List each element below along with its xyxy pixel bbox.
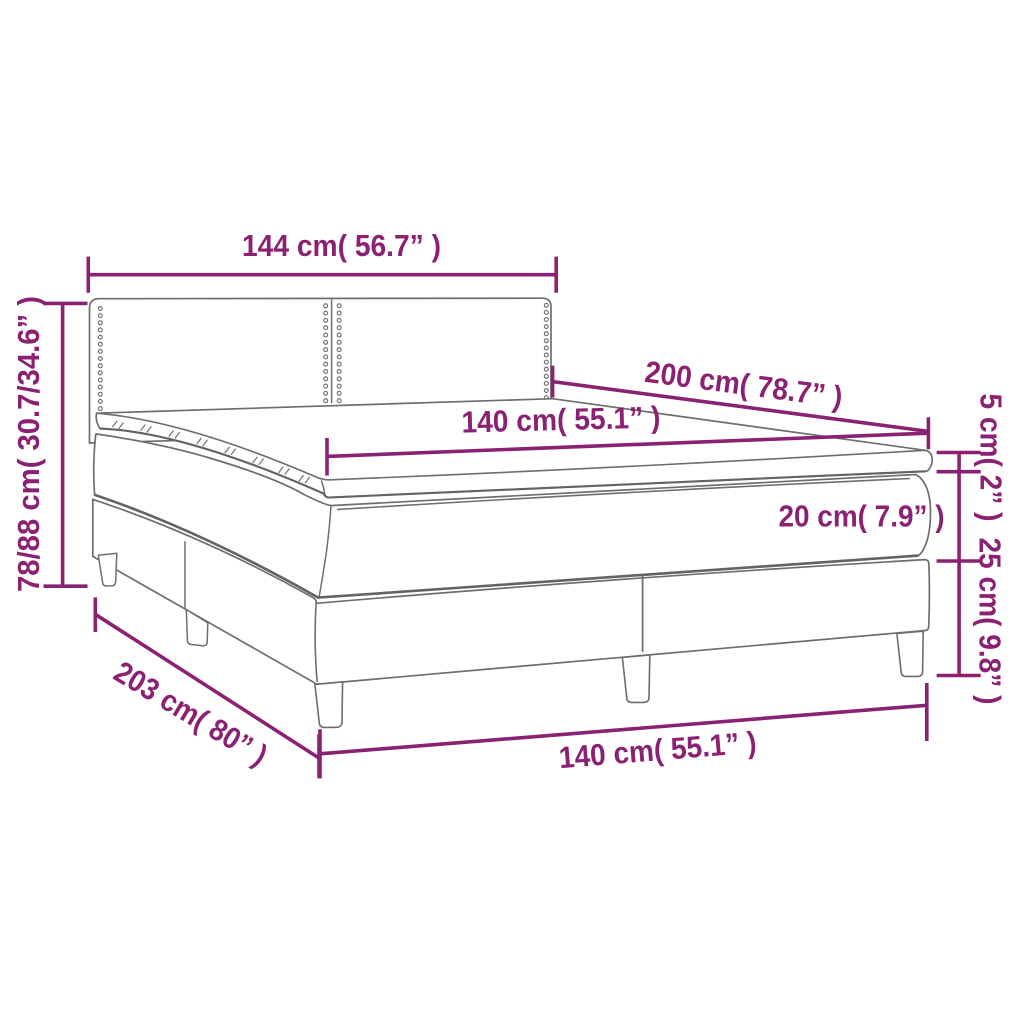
svg-text:5 cm( 2” ): 5 cm( 2” ): [973, 394, 1007, 522]
svg-text:140 cm( 55.1” ): 140 cm( 55.1” ): [461, 400, 661, 439]
svg-text:144 cm( 56.7” ): 144 cm( 56.7” ): [242, 229, 441, 263]
svg-text:78/88 cm( 30.7/34.6” ): 78/88 cm( 30.7/34.6” ): [12, 296, 46, 592]
svg-text:25 cm( 9.8” ): 25 cm( 9.8” ): [973, 538, 1007, 705]
svg-text:20 cm( 7.9” ): 20 cm( 7.9” ): [779, 499, 945, 533]
